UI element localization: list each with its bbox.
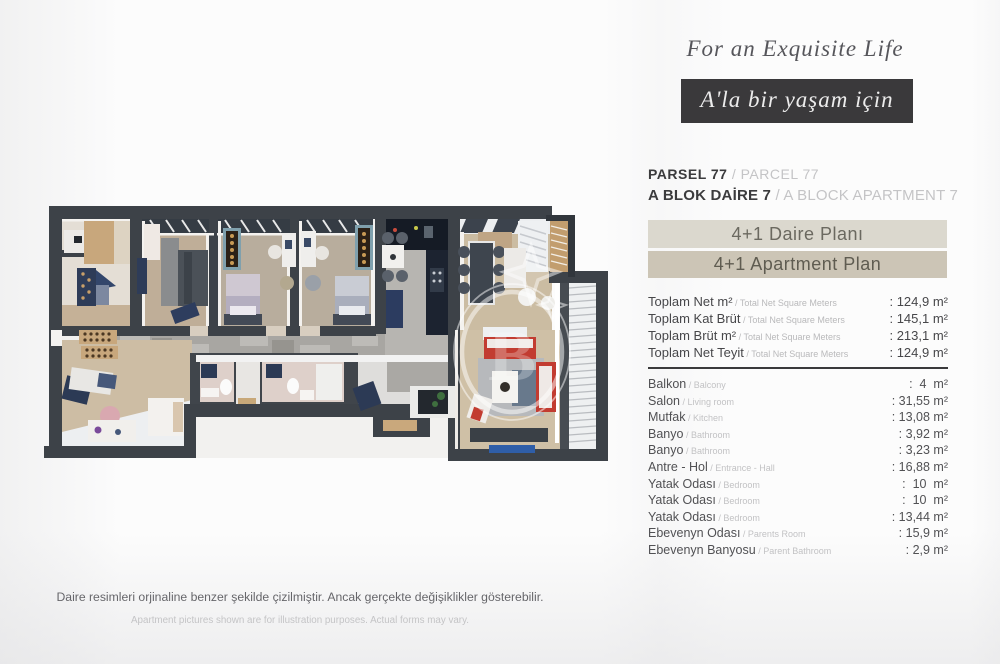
svg-text:B: B	[488, 316, 536, 396]
